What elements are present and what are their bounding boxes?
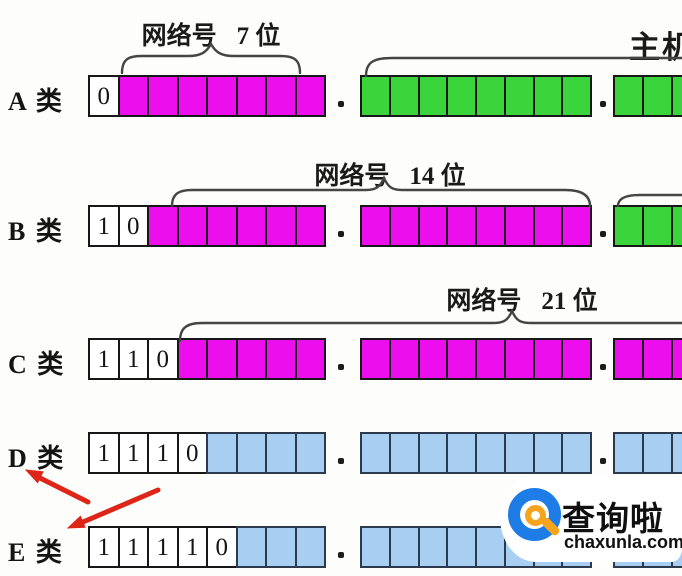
- bit-cell: [671, 338, 682, 380]
- bit-cell: [236, 338, 268, 380]
- row-label-class-d: D 类: [8, 438, 86, 475]
- bit-cell: [446, 75, 477, 117]
- octet-separator-dot: [338, 364, 344, 370]
- octet-3-row-b: [613, 205, 682, 247]
- bit-cell: [295, 526, 327, 568]
- bit-cell: [206, 432, 238, 474]
- bit-cell: [389, 75, 420, 117]
- fixed-bit-box: 1: [88, 526, 120, 568]
- bit-cell: [206, 338, 238, 380]
- bit-cell: [295, 432, 327, 474]
- bit-cell: [389, 526, 420, 568]
- bit-cell: [446, 526, 477, 568]
- bit-cell: [642, 432, 673, 474]
- network-bitcount-a: 7 位: [237, 23, 281, 50]
- fixed-bit-box: 0: [88, 75, 120, 117]
- fixed-bit-box: 0: [177, 432, 209, 474]
- row-label-class-a: A 类: [8, 81, 86, 118]
- bit-cell: [147, 75, 179, 117]
- bit-cell: [265, 205, 297, 247]
- network-label-b: 网络号: [314, 163, 389, 190]
- bit-cell: [147, 205, 179, 247]
- watermark-domain: chaxunla.com: [564, 532, 682, 553]
- bit-cell: [613, 205, 644, 247]
- octet-separator-dot: [338, 458, 344, 464]
- bit-cell: [642, 205, 673, 247]
- bit-cell: [671, 75, 682, 117]
- row-label-class-e: E 类: [8, 532, 86, 569]
- fixed-bit-box: 1: [88, 338, 120, 380]
- bit-cell: [561, 75, 592, 117]
- fixed-bit-box: 1: [177, 526, 209, 568]
- bit-cell: [295, 75, 327, 117]
- octet-1-row-c: 110: [88, 338, 326, 380]
- bit-cell: [504, 205, 535, 247]
- bit-cell: [475, 338, 506, 380]
- fixed-bit-box: 1: [88, 432, 120, 474]
- bit-cell: [236, 432, 268, 474]
- bit-cell: [671, 432, 682, 474]
- bit-cell: [118, 75, 150, 117]
- octet-separator-dot: [338, 552, 344, 558]
- octet-separator-dot: [600, 364, 606, 370]
- fixed-bit-box: 1: [118, 432, 150, 474]
- octet-separator-dot: [600, 458, 606, 464]
- row-label-class-c: C 类: [8, 344, 86, 381]
- bit-cell: [533, 432, 564, 474]
- watermark: 查询啦 chaxunla.com: [500, 476, 682, 562]
- octet-separator-dot: [600, 101, 606, 107]
- octet-3-row-c: [613, 338, 682, 380]
- bit-cell: [642, 338, 673, 380]
- octet-2-row-d: [360, 432, 592, 474]
- bit-cell: [533, 205, 564, 247]
- bit-cell: [295, 338, 327, 380]
- network-bits-label-b: 网络号14 位: [284, 156, 496, 192]
- octet-2-row-a: [360, 75, 592, 117]
- bit-cell: [418, 205, 449, 247]
- row-label-class-b: B 类: [8, 211, 86, 248]
- bit-cell: [265, 432, 297, 474]
- octet-separator-dot: [600, 231, 606, 237]
- bit-cell: [389, 432, 420, 474]
- bit-cell: [360, 432, 391, 474]
- bit-cell: [418, 75, 449, 117]
- octet-separator-dot: [338, 231, 344, 237]
- bit-cell: [389, 205, 420, 247]
- bit-cell: [613, 75, 644, 117]
- bit-cell: [295, 205, 327, 247]
- bit-cell: [360, 205, 391, 247]
- bit-cell: [418, 432, 449, 474]
- bit-cell: [475, 205, 506, 247]
- fixed-bit-box: 0: [206, 526, 238, 568]
- bit-cell: [533, 75, 564, 117]
- fixed-bit-box: 1: [118, 338, 150, 380]
- bit-cell: [265, 338, 297, 380]
- bit-cell: [642, 75, 673, 117]
- bit-cell: [206, 205, 238, 247]
- network-bitcount-c: 21 位: [541, 288, 597, 315]
- bit-cell: [504, 75, 535, 117]
- octet-2-row-b: [360, 205, 592, 247]
- fixed-bit-box: 0: [118, 205, 150, 247]
- octet-1-row-b: 10: [88, 205, 326, 247]
- octet-3-row-a: [613, 75, 682, 117]
- bit-cell: [446, 338, 477, 380]
- bit-cell: [561, 205, 592, 247]
- bit-cell: [475, 432, 506, 474]
- bit-cell: [613, 338, 644, 380]
- bit-cell: [236, 205, 268, 247]
- network-bitcount-b: 14 位: [409, 163, 465, 190]
- bit-cell: [613, 432, 644, 474]
- bit-cell: [446, 432, 477, 474]
- octet-1-row-e: 11110: [88, 526, 326, 568]
- bit-cell: [265, 75, 297, 117]
- bit-cell: [446, 205, 477, 247]
- ip-class-diagram: 网络号7 位 网络号14 位 网络号21 位 主机号 A 类0B 类10C 类1…: [0, 0, 682, 576]
- bit-cell: [418, 526, 449, 568]
- bit-cell: [561, 338, 592, 380]
- network-bits-label-c: 网络号21 位: [412, 281, 632, 317]
- bit-cell: [360, 526, 391, 568]
- octet-2-row-c: [360, 338, 592, 380]
- octet-3-row-d: [613, 432, 682, 474]
- bit-cell: [177, 75, 209, 117]
- bit-cell: [360, 75, 391, 117]
- red-arrow-to-e: [68, 490, 158, 528]
- bit-cell: [360, 338, 391, 380]
- bit-cell: [236, 75, 268, 117]
- network-label-c: 网络号: [446, 288, 521, 315]
- octet-1-row-d: 1110: [88, 432, 326, 474]
- bit-cell: [475, 75, 506, 117]
- fixed-bit-box: 0: [147, 338, 179, 380]
- octet-separator-dot: [338, 101, 344, 107]
- fixed-bit-box: 1: [147, 526, 179, 568]
- bit-cell: [265, 526, 297, 568]
- bit-cell: [177, 338, 209, 380]
- bit-cell: [561, 432, 592, 474]
- bit-cell: [418, 338, 449, 380]
- fixed-bit-box: 1: [147, 432, 179, 474]
- network-label-a: 网络号: [142, 23, 217, 50]
- bit-cell: [389, 338, 420, 380]
- bit-cell: [533, 338, 564, 380]
- bit-cell: [177, 205, 209, 247]
- bit-cell: [504, 338, 535, 380]
- bit-cell: [206, 75, 238, 117]
- host-label: 主机号: [629, 22, 682, 67]
- fixed-bit-box: 1: [88, 205, 120, 247]
- octet-1-row-a: 0: [88, 75, 326, 117]
- fixed-bit-box: 1: [118, 526, 150, 568]
- network-bits-label-a: 网络号7 位: [105, 16, 317, 52]
- bit-cell: [671, 205, 682, 247]
- bit-cell: [504, 432, 535, 474]
- bit-cell: [236, 526, 268, 568]
